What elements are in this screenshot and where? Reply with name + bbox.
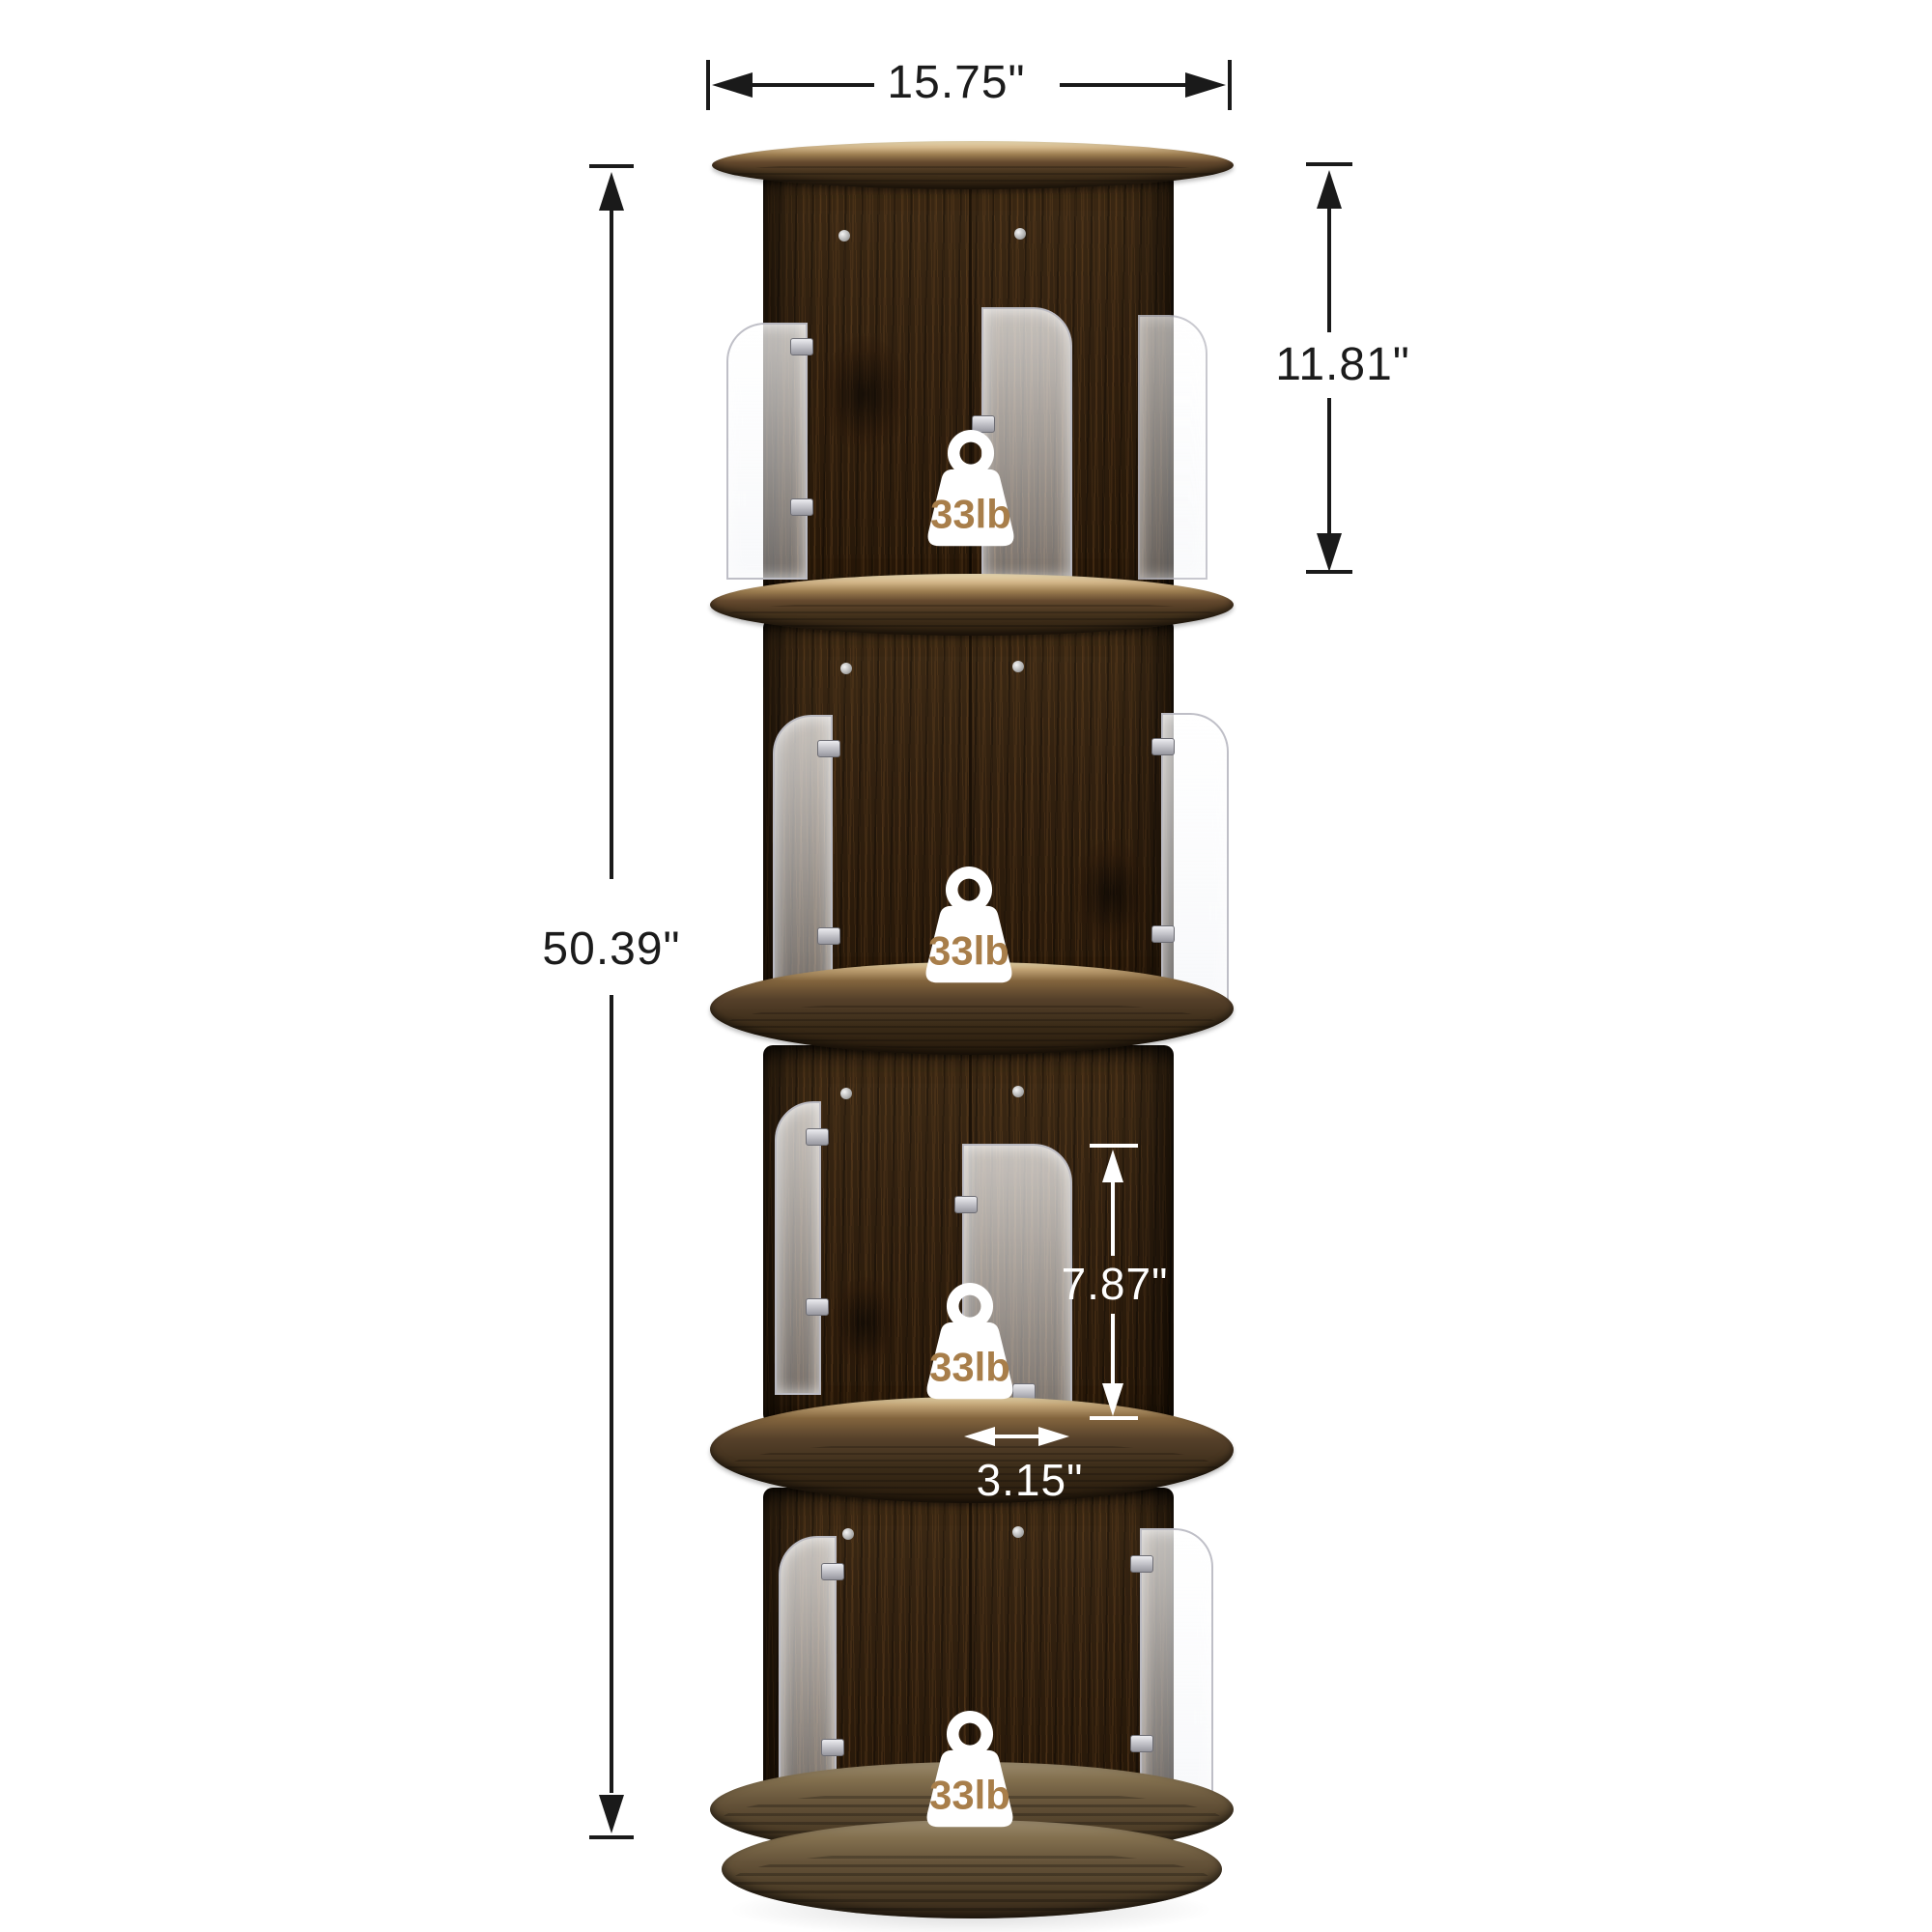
weight-capacity-label: 33lb (929, 1344, 1010, 1389)
dimension-label-divider-gap: 3.15" (933, 1454, 1126, 1506)
weight-capacity-label: 33lb (930, 491, 1011, 536)
screw (842, 1528, 854, 1540)
panel-clip (821, 1739, 844, 1756)
screw (840, 1088, 852, 1099)
panel-clip (790, 338, 813, 355)
screw (838, 230, 850, 241)
screw (1012, 1526, 1024, 1538)
shelf-divider-disc-1 (710, 574, 1234, 636)
weight-capacity-badge: 33lb (908, 866, 1030, 999)
panel-clip (1130, 1555, 1153, 1573)
panel-clip (821, 1563, 844, 1580)
screw (840, 663, 852, 674)
dimension-label-top-width: 15.75" (860, 56, 1053, 110)
panel-clip (817, 740, 840, 757)
product-diagram-canvas: 33lb 33lb 33lb 33lb (0, 0, 1932, 1932)
screw (1012, 661, 1024, 672)
dimension-total-height (589, 166, 634, 1837)
panel-clip (1130, 1735, 1153, 1752)
panel-clip (806, 1298, 829, 1316)
wood-knot (821, 336, 908, 452)
weight-capacity-badge: 33lb (909, 1710, 1031, 1843)
dimension-label-tier-height: 11.81" (1246, 338, 1439, 392)
panel-clip (1151, 925, 1175, 943)
weight-capacity-badge: 33lb (909, 1282, 1031, 1415)
screw (1014, 228, 1026, 240)
panel-clip (954, 1196, 978, 1213)
screw (1012, 1086, 1024, 1097)
panel-clip (1151, 738, 1175, 755)
acrylic-bookend-panel (1161, 713, 1229, 1003)
acrylic-bookend-panel (1138, 315, 1207, 580)
weight-capacity-label: 33lb (929, 1772, 1010, 1817)
weight-capacity-badge: 33lb (910, 429, 1032, 562)
dimension-label-shelf-clearance: 7.87" (1018, 1258, 1211, 1310)
wood-knot (1072, 840, 1150, 947)
panel-clip (790, 498, 813, 516)
dimension-label-total-height: 50.39" (515, 923, 708, 977)
panel-clip (817, 927, 840, 945)
panel-clip (806, 1128, 829, 1146)
top-shelf-disc (712, 141, 1234, 189)
acrylic-bookend-panel (773, 715, 833, 1001)
acrylic-bookend-panel (726, 323, 808, 580)
wood-knot (831, 1277, 898, 1369)
weight-capacity-label: 33lb (928, 927, 1009, 973)
